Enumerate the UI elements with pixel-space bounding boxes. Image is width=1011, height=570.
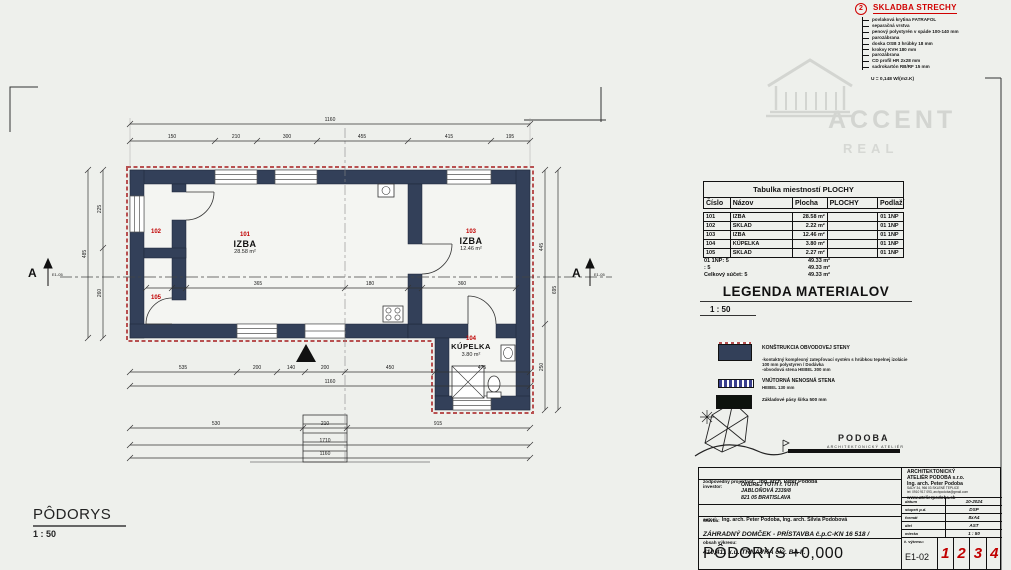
cell: 2.22 m² <box>793 222 828 230</box>
summary-value: 49.33 m² <box>794 258 830 265</box>
meta-label: stupeň p.d. <box>902 506 946 513</box>
meta-label: dátum <box>902 498 946 505</box>
title-block: zodpovedný projektant: Ing. arch. Peter … <box>698 467 1001 570</box>
legend-item-title: VNÚTORNÁ NENOSNÁ STENA <box>762 378 835 384</box>
entrance-steps <box>250 415 430 462</box>
cell <box>828 213 878 221</box>
col-header: Plocha <box>793 198 828 208</box>
dim-label: 260 <box>97 289 103 297</box>
dim-label: 300 <box>283 134 291 140</box>
summary-label: Celkový súčet: 5 <box>703 272 794 279</box>
atelier-logo-bar <box>788 449 900 453</box>
table-row: 102SKLAD2.22 m²01 1NP <box>704 222 903 231</box>
table-summary-row: 01 1NP: 549.33 m² <box>703 258 904 265</box>
legend-title: LEGENDA MATERIALOV <box>700 284 912 302</box>
dim-label: 200 <box>321 365 329 371</box>
page-number-2: 2 <box>953 538 969 570</box>
drawing-number: E1-02 <box>905 552 929 562</box>
summary-value: 49.33 m² <box>794 272 830 279</box>
meta-row: mierka 1 : 50 <box>902 530 1002 538</box>
col-header: PLOCHY <box>828 198 878 208</box>
boiler-icon <box>378 184 394 197</box>
caption-scale: 1 : 50 <box>33 529 126 539</box>
dim-label: 1160 <box>320 451 331 457</box>
dim-label: 210 <box>321 421 329 427</box>
room-area: 3.80 m² <box>442 352 500 358</box>
dim-label: 195 <box>506 134 514 140</box>
col-header: Názov <box>731 198 793 208</box>
table-row: 103IZBA12.46 m²01 1NP <box>704 231 903 240</box>
summary-value: 49.33 m² <box>794 265 830 272</box>
room-label-105: 105 <box>151 295 161 301</box>
meta-row: diel AST <box>902 522 1002 530</box>
room-area: 28.58 m² <box>222 249 268 255</box>
dim-label: 1710 <box>319 438 330 444</box>
cell: 01 1NP <box>878 231 903 239</box>
dim-label: 915 <box>434 421 442 427</box>
atelier-sketch-icon <box>695 402 790 456</box>
page-number-3: 3 <box>969 538 985 570</box>
table-row: 104KÚPELKA3.80 m²01 1NP <box>704 240 903 249</box>
dim-label: 535 <box>179 365 187 371</box>
room-name: IZBA <box>448 236 494 246</box>
meta-value: 10-2024 <box>946 498 1002 505</box>
section-letter-right: A <box>572 266 581 280</box>
room-label-104: 104 KÚPELKA 3.80 m² <box>442 336 500 358</box>
meta-value: 8xA4 <box>946 514 1002 521</box>
dim-label: 415 <box>445 134 453 140</box>
cell: SKLAD <box>731 249 793 257</box>
cell: 103 <box>704 231 731 239</box>
room-table-header: Číslo Názov Plocha PLOCHY Podlaží <box>703 198 904 209</box>
title-block-right: ARCHITEKTONICKÝ ATELIÉR PODOBA s.r.o. In… <box>902 468 1002 570</box>
cell: 105 <box>704 249 731 257</box>
col-header: Podlaží <box>878 198 903 208</box>
room-name: IZBA <box>222 239 268 249</box>
meta-value: DSP <box>946 506 1002 513</box>
investor-city: 821 05 BRATISLAVA <box>741 495 798 501</box>
cell: KÚPELKA <box>731 240 793 248</box>
roof-layer: sadrokartón RB/RF 15 mm <box>863 64 959 70</box>
cell: 28.58 m² <box>793 213 828 221</box>
watermark-brand: ACCENT <box>828 106 956 135</box>
cell <box>828 231 878 239</box>
cell: 01 1NP <box>878 240 903 248</box>
dim-label: 1160 <box>325 117 336 123</box>
table-summary-row: : 549.33 m² <box>703 265 904 272</box>
meta-row: dátum 10-2024 <box>902 498 1002 506</box>
section-ref-right: E1-05 <box>594 272 605 277</box>
room-label-103: 103 IZBA 12.46 m² <box>448 229 494 253</box>
title-block-left: zodpovedný projektant: Ing. arch. Peter … <box>699 468 902 570</box>
meta-row: formát 8xA4 <box>902 514 1002 522</box>
cell: 3.80 m² <box>793 240 828 248</box>
dim-label: 180 <box>366 281 374 287</box>
section-ref-left: E1-05 <box>52 272 63 277</box>
drawing-title: PÔDORYS +0,000 <box>703 545 844 562</box>
u-value: U = 0,148 W/(m2.K) <box>871 77 914 82</box>
dim-label: 450 <box>386 365 394 371</box>
table-row: 101IZBA28.58 m²01 1NP <box>704 213 903 222</box>
drawing-caption: PÔDORYS 1 : 50 <box>33 506 126 539</box>
cell: SKLAD <box>731 222 793 230</box>
dim-label: 530 <box>212 421 220 427</box>
page-number-4: 4 <box>986 538 1002 570</box>
dim-label: 445 <box>539 243 545 251</box>
summary-label: : 5 <box>703 265 794 272</box>
section-letter-left: A <box>28 266 37 280</box>
cell: 12.46 m² <box>793 231 828 239</box>
drawing-sheet: 2 SKLADBA STRECHY povlaková krytina FATR… <box>0 0 1011 570</box>
meta-label: diel <box>902 522 946 529</box>
dim-label: 1160 <box>325 379 336 385</box>
field-label: investor: <box>703 484 722 489</box>
dim-label: 485 <box>82 250 88 258</box>
project-name-line: ZÁHRADNÝ DOMČEK - PRÍSTAVBA č.p.C-KN 16 … <box>703 531 869 538</box>
page-number-1: 1 <box>937 538 953 570</box>
dim-label: 250 <box>539 363 545 371</box>
meta-row: stupeň p.d. DSP <box>902 506 1002 514</box>
caption-title: PÔDORYS <box>33 506 126 523</box>
entrance-marker-icon <box>296 344 316 362</box>
meta-value: AST <box>946 522 1002 529</box>
dim-label: 455 <box>358 134 366 140</box>
office-info: ARCHITEKTONICKÝ ATELIÉR PODOBA s.r.o. In… <box>902 468 1002 498</box>
drawing-number-label: č. výkresu: <box>904 540 924 544</box>
roof-assembly-layers: povlaková krytina FATRAFOL separačná vrs… <box>862 17 959 70</box>
room-label-102: 102 <box>151 229 161 235</box>
room-number: 101 <box>222 232 268 239</box>
cell: 101 <box>704 213 731 221</box>
dim-label: 360 <box>458 281 466 287</box>
room-table-title: Tabulka miestností PLOCHY <box>703 181 904 198</box>
cell: IZBA <box>731 231 793 239</box>
cell <box>828 249 878 257</box>
detail-marker-2: 2 <box>855 3 867 15</box>
field-label: Stavba: <box>703 518 902 523</box>
caption-underline <box>33 525 126 527</box>
legend-item-title: KONŠTRUKCIA OBVODOVEJ STENY <box>762 345 850 351</box>
investor-address: JABLOŇOVÁ 2339/8 <box>741 488 798 494</box>
meta-label: mierka <box>902 530 946 537</box>
materials-legend: LEGENDA MATERIALOV 1 : 50 <box>700 284 912 316</box>
legend-item-title: Základové pásy šírka 500 mm <box>762 397 827 402</box>
dim-label: 695 <box>552 286 558 294</box>
atelier-logo-subtitle: ARCHITEKTONICKÝ ATELIÉR <box>827 445 904 449</box>
toilet-icon <box>487 376 501 398</box>
cell <box>828 240 878 248</box>
legend-scale: 1 : 50 <box>700 302 756 316</box>
stove-icon <box>383 306 403 322</box>
entrance-opening <box>305 324 345 338</box>
dim-label: 150 <box>168 134 176 140</box>
legend-item-desc: HEBEL 130 mm <box>762 385 794 390</box>
room-table: Tabulka miestností PLOCHY Číslo Názov Pl… <box>703 181 904 279</box>
legend-swatch-exterior-wall <box>718 344 752 361</box>
table-summary-row: Celkový súčet: 549.33 m² <box>703 272 904 279</box>
cell: 104 <box>704 240 731 248</box>
room-name: KÚPELKA <box>442 343 500 352</box>
watermark-sub: REAL <box>843 141 898 156</box>
sink-icon <box>501 345 515 361</box>
cell: 01 1NP <box>878 249 903 257</box>
meta-label: formát <box>902 514 946 521</box>
roof-assembly-title: SKLADBA STRECHY <box>873 3 957 14</box>
cell: 2.27 m² <box>793 249 828 257</box>
dim-label: 140 <box>287 365 295 371</box>
room-table-rows: 101IZBA28.58 m²01 1NP 102SKLAD2.22 m²01 … <box>703 212 904 258</box>
atelier-logo-name: PODOBA <box>838 433 890 443</box>
legend-swatch-foundation <box>716 395 752 409</box>
dim-label: 210 <box>232 134 240 140</box>
drawing-number-row: č. výkresu: E1-02 1 2 3 4 <box>902 538 1002 570</box>
drawing-number-cell: č. výkresu: E1-02 <box>902 538 937 570</box>
summary-label: 01 1NP: 5 <box>703 258 794 265</box>
dim-label: 365 <box>254 281 262 287</box>
cell: 01 1NP <box>878 222 903 230</box>
cell: 01 1NP <box>878 213 903 221</box>
dim-label: 475 <box>478 365 486 371</box>
legend-item-desc: -obvodová stena HEBEL 300 mm <box>762 367 830 372</box>
col-header: Číslo <box>704 198 731 208</box>
meta-value: 1 : 50 <box>946 530 1002 537</box>
table-row: 105SKLAD2.27 m²01 1NP <box>704 249 903 257</box>
dim-label: 225 <box>97 205 103 213</box>
cell: IZBA <box>731 213 793 221</box>
room-area: 12.46 m² <box>448 246 494 252</box>
cell <box>828 222 878 230</box>
dim-label: 200 <box>253 365 261 371</box>
legend-swatch-interior-wall <box>718 379 754 388</box>
room-number: 103 <box>448 229 494 236</box>
cell: 102 <box>704 222 731 230</box>
room-label-101: 101 IZBA 28.58 m² <box>222 232 268 256</box>
